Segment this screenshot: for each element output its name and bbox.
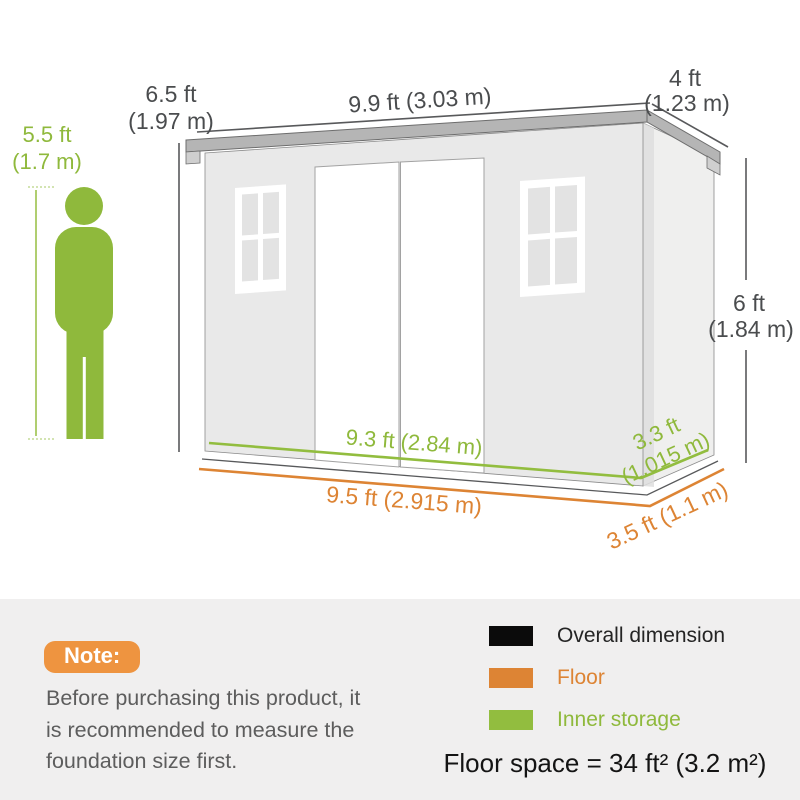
legend-label-overall: Overall dimension	[557, 624, 725, 648]
shed-dimension-diagram: 5.5 ft (1.7 m) 6.5 ft (1.97 m) 9.9 ft (3…	[0, 0, 800, 599]
svg-text:(1.23 m): (1.23 m)	[644, 90, 730, 116]
overall-dimension-swatch	[489, 626, 533, 646]
info-panel: Note: Before purchasing this product, it…	[0, 599, 800, 800]
floor-space-total: Floor space = 34 ft² (3.2 m²)	[420, 748, 790, 779]
svg-text:(1.7 m): (1.7 m)	[12, 149, 82, 174]
label-floor-depth: 3.5 ft (1.1 m)	[603, 476, 732, 555]
overall-swatch-rect	[489, 626, 533, 646]
label-floor-width: 9.5 ft (2.915 m)	[325, 481, 483, 519]
legend-item-overall: Overall dimension	[489, 626, 725, 646]
label-front-height: 6.5 ft (1.97 m)	[128, 81, 214, 134]
door-right-panel	[401, 158, 485, 473]
floor-swatch	[489, 668, 533, 688]
diagram-svg: 5.5 ft (1.7 m) 6.5 ft (1.97 m) 9.9 ft (3…	[0, 0, 800, 599]
person-figure	[55, 187, 113, 439]
legend: Overall dimension Floor Inner storage	[489, 626, 725, 752]
legend-item-inner-storage: Inner storage	[489, 710, 725, 730]
svg-text:4 ft: 4 ft	[669, 65, 702, 91]
svg-text:(1.97 m): (1.97 m)	[128, 108, 214, 134]
svg-text:(1.84 m): (1.84 m)	[708, 316, 794, 342]
roof-end-cap-left	[186, 151, 200, 164]
label-roof-width: 9.9 ft (3.03 m)	[348, 83, 493, 118]
svg-text:6 ft: 6 ft	[733, 290, 766, 316]
inner-storage-swatch-rect	[489, 710, 533, 730]
label-person-height: 5.5 ft (1.7 m)	[12, 122, 82, 174]
person-height-line	[28, 187, 56, 439]
label-roof-depth: 4 ft (1.23 m)	[644, 65, 730, 116]
label-wall-height: 6 ft (1.84 m)	[708, 290, 794, 342]
legend-label-inner-storage: Inner storage	[557, 708, 681, 732]
door-left-panel	[315, 162, 399, 467]
note-text-line: Before purchasing this product, it	[46, 683, 360, 715]
svg-text:6.5 ft: 6.5 ft	[145, 81, 197, 107]
floor-swatch-rect	[489, 668, 533, 688]
note-badge: Note:	[44, 641, 140, 673]
legend-label-floor: Floor	[557, 666, 605, 690]
shed-dimensions-page: 5.5 ft (1.7 m) 6.5 ft (1.97 m) 9.9 ft (3…	[0, 0, 800, 800]
note-badge-label: Note:	[64, 643, 120, 668]
window-left	[235, 184, 286, 294]
note-text-line: foundation size first.	[46, 746, 360, 778]
window-right	[520, 176, 585, 297]
svg-text:5.5 ft: 5.5 ft	[23, 122, 72, 147]
inner-storage-swatch	[489, 710, 533, 730]
note-text-line: is recommended to measure the	[46, 715, 360, 747]
legend-item-floor: Floor	[489, 668, 725, 688]
shed-doors	[315, 158, 484, 473]
note-text: Before purchasing this product, it is re…	[46, 683, 360, 778]
